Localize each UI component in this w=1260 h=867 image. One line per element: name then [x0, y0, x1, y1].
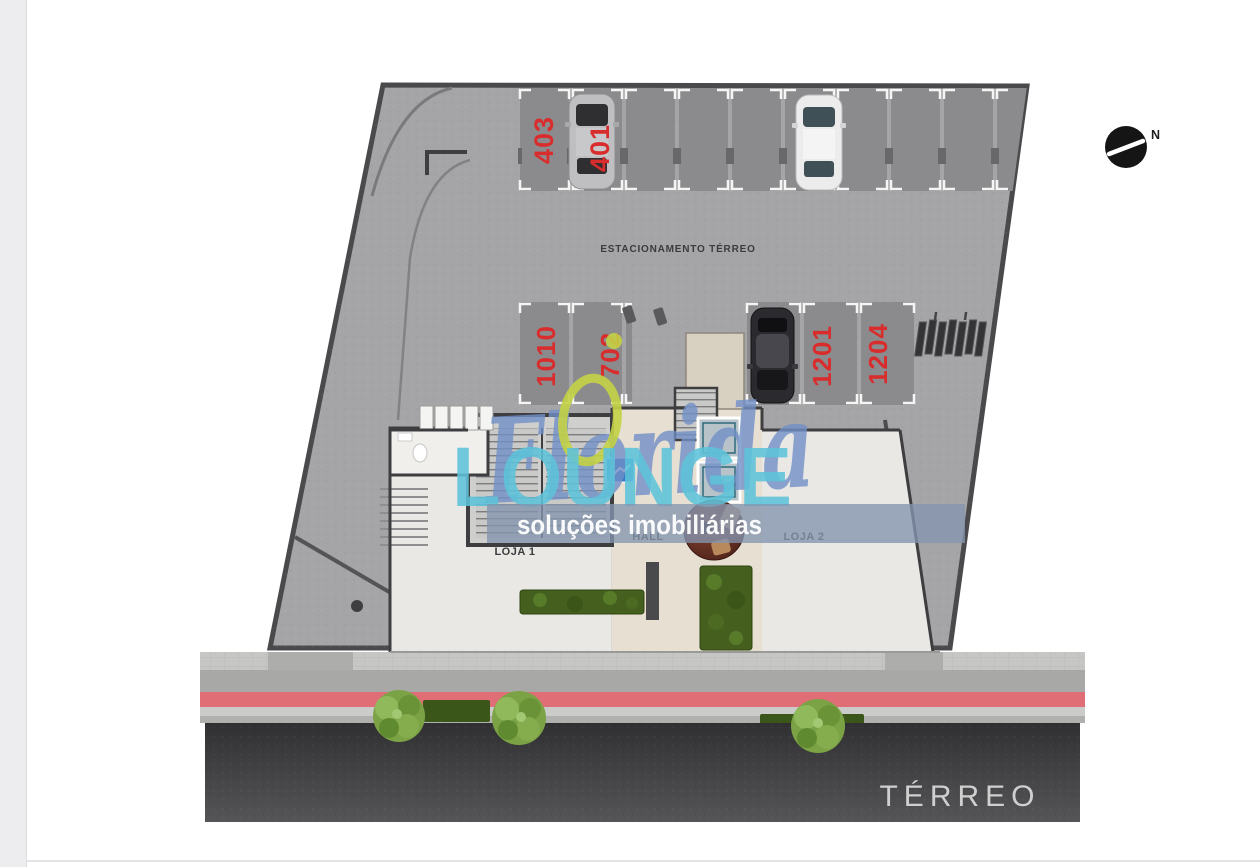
spot-number-401: 401: [585, 124, 615, 172]
floorplan-page: TÉRREO: [0, 0, 1260, 867]
spot-number-1010: 1010: [531, 325, 561, 387]
watermark-tagline: soluções imobiliárias: [517, 510, 762, 540]
toilet-fixture: [413, 444, 427, 462]
bollard: [351, 600, 363, 612]
parking-area-label: ESTACIONAMENTO TÉRREO: [600, 242, 755, 255]
sidewalk-lower-strip: [200, 707, 1085, 716]
entry-column: [646, 562, 659, 620]
compass-north-label: N: [1151, 128, 1160, 142]
curb-strip: [200, 670, 1085, 692]
tree: [492, 691, 546, 745]
tree: [373, 690, 425, 742]
loja1-label: LOJA 1: [494, 546, 535, 558]
hedge-loja2: [700, 566, 752, 650]
floorplan-drawing: TÉRREO: [0, 0, 1260, 867]
floor-title: TÉRREO: [879, 780, 1040, 813]
car-white: [792, 95, 846, 190]
sink-fixture: [398, 433, 412, 441]
tree-pit-hedge-left: [423, 700, 490, 722]
watermark-yellow-dot: [606, 333, 622, 349]
sidewalk: [200, 652, 1085, 732]
cycle-lane-stripe: [200, 692, 1085, 707]
spot-number-1201: 1201: [807, 325, 837, 387]
tree: [791, 699, 845, 753]
street: TÉRREO: [205, 723, 1080, 822]
spot-number-1204: 1204: [863, 323, 893, 385]
spot-number-403: 403: [529, 116, 559, 164]
north-compass: N: [1105, 126, 1160, 168]
sidewalk-edge-strip: [200, 716, 1085, 723]
hedge-loja1: [520, 590, 644, 614]
